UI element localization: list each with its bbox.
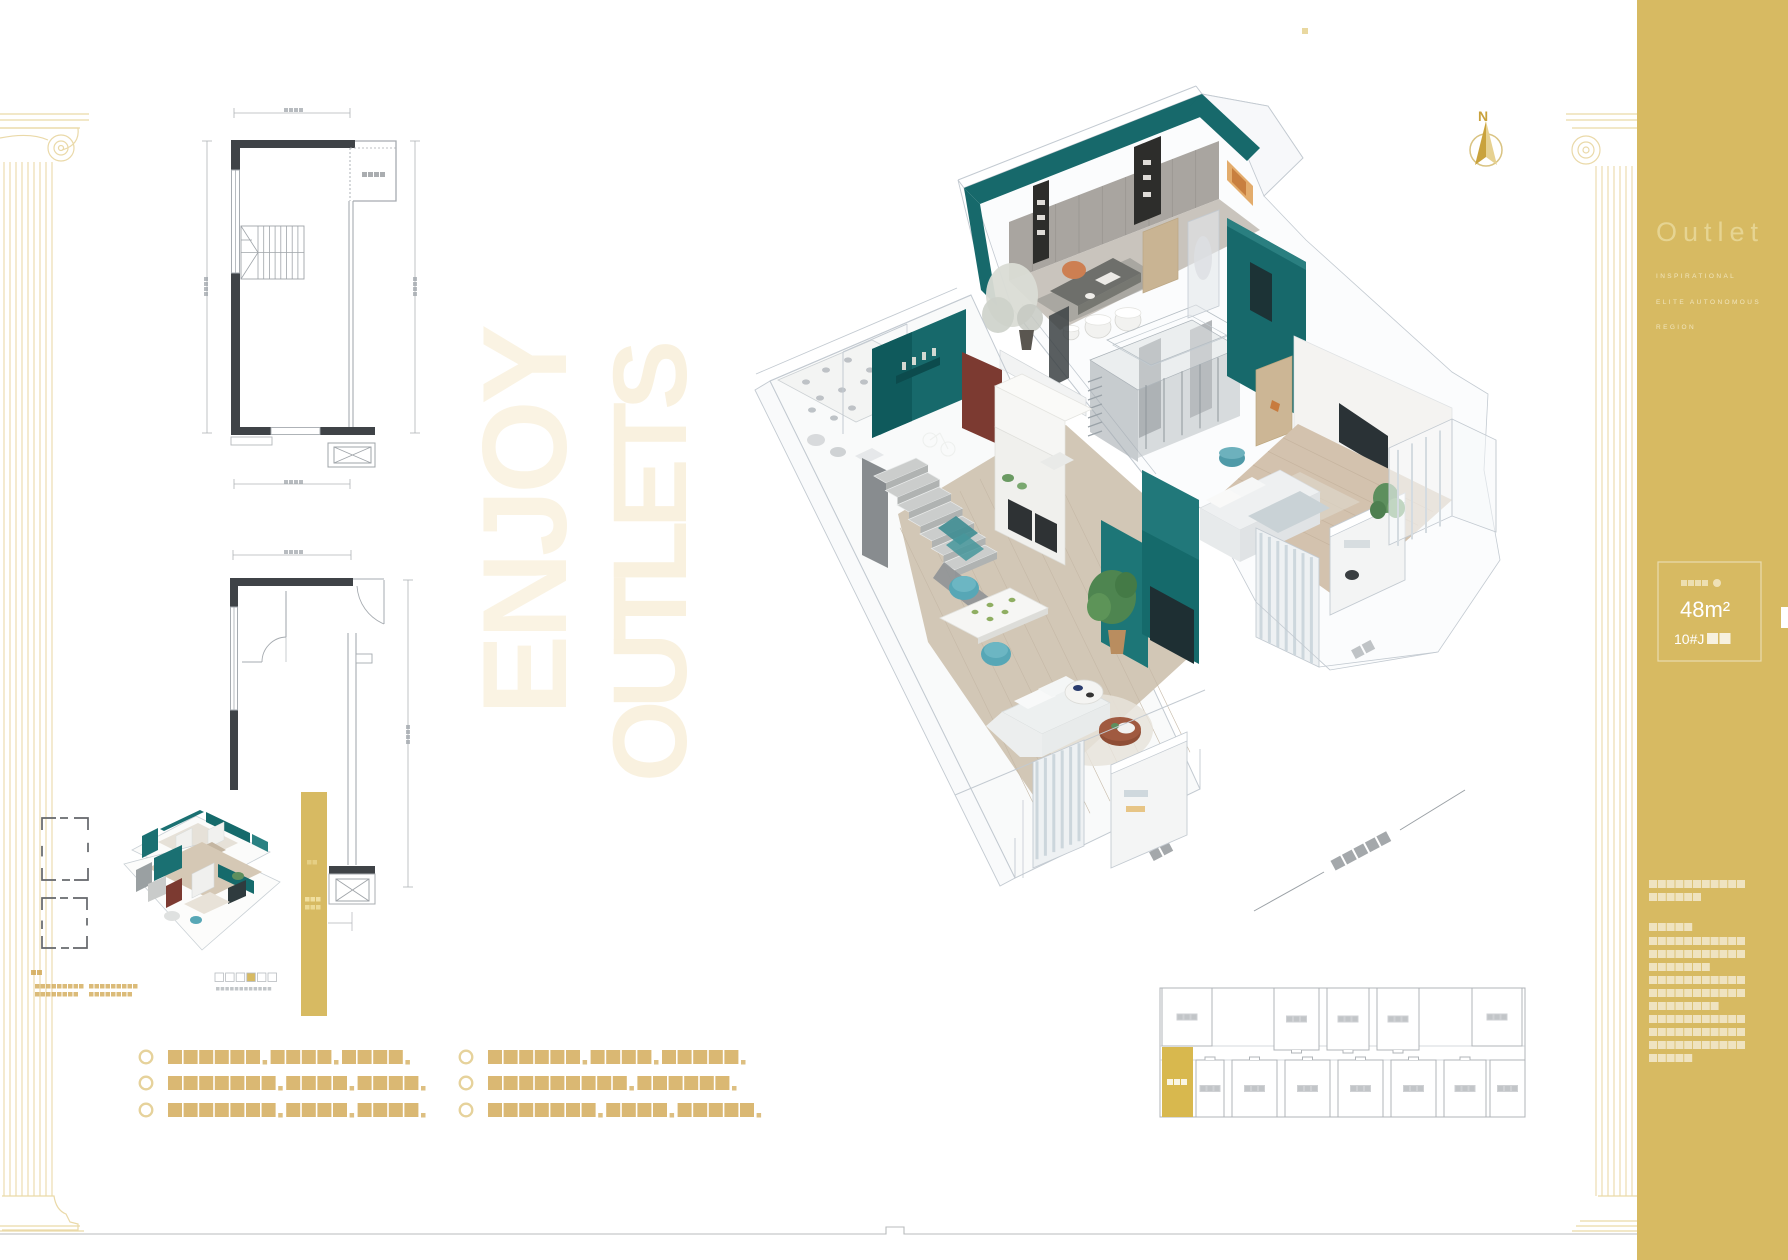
svg-text:N: N bbox=[1478, 108, 1488, 124]
svg-text:48m²: 48m² bbox=[1680, 597, 1730, 622]
svg-text:OUTLETS: OUTLETS bbox=[592, 344, 709, 782]
svg-text:ELITE AUTONOMOUS: ELITE AUTONOMOUS bbox=[1656, 299, 1761, 306]
svg-text:Outlet: Outlet bbox=[1656, 217, 1764, 247]
svg-text:REGION: REGION bbox=[1656, 324, 1696, 331]
svg-text:INSPIRATIONAL: INSPIRATIONAL bbox=[1656, 273, 1736, 280]
svg-text:10#J: 10#J bbox=[1674, 631, 1704, 647]
svg-text:ENJOY: ENJOY bbox=[458, 325, 592, 715]
